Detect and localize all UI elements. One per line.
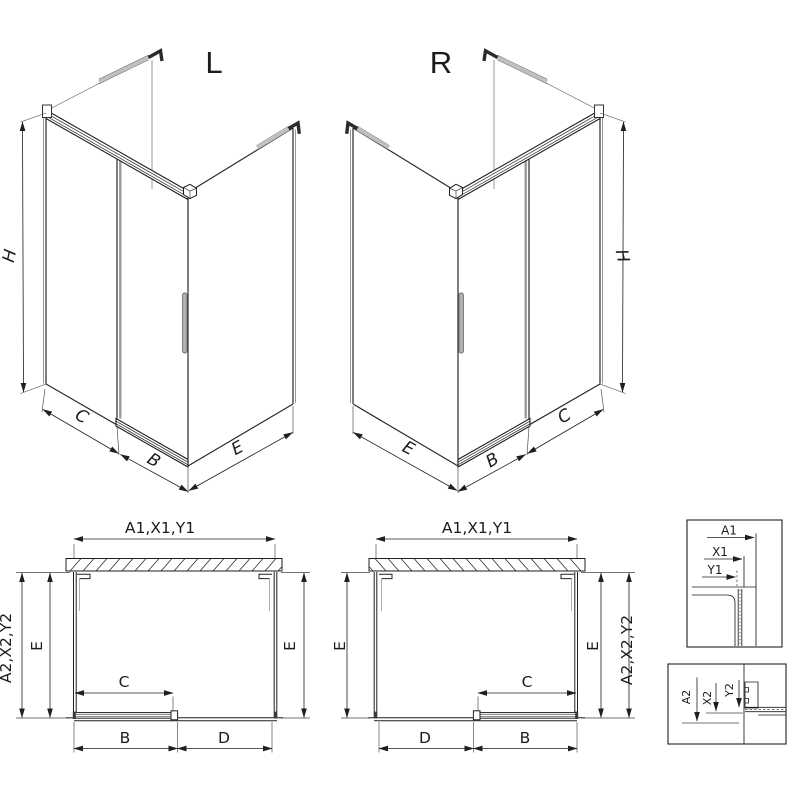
plan-left-e-right-label: E — [281, 641, 299, 651]
wall-section — [66, 559, 282, 572]
iso-left-dim-h-label: H — [0, 247, 21, 264]
detail-lower-y2-label: Y2 — [723, 683, 736, 698]
wall-bracket-profiles — [77, 574, 272, 578]
drawing-svg: L H C B E R H C B E — [0, 0, 800, 800]
panel-inner-edges — [80, 579, 270, 611]
dim-extension-lines — [21, 113, 294, 493]
iso-left-labels: L H C B E — [0, 45, 247, 472]
detail-upper-x1-label: X1 — [712, 545, 728, 559]
plan-right-d-label: D — [419, 729, 431, 747]
iso-right-dim-c-label: C — [554, 405, 574, 428]
iso-enclosure-left-geometry — [21, 51, 300, 493]
support-bar-right — [257, 129, 289, 148]
thin-aux-lines — [44, 55, 296, 403]
door-wall-cap — [73, 712, 76, 719]
side-panel-profiles — [66, 572, 283, 721]
plan-left-depth-outer-label: A2,X2,Y2 — [0, 613, 15, 683]
detail-upper-a1-label: A1 — [721, 524, 737, 538]
detail-lower-x2-label: X2 — [701, 691, 714, 706]
door-handle — [183, 293, 187, 353]
plan-left-d-label: D — [218, 729, 230, 747]
detail-lower-box: A2 X2 Y2 — [668, 664, 786, 744]
plan-left-b-label: B — [120, 729, 131, 747]
detail-upper-y1-label: Y1 — [707, 563, 723, 577]
plan-right-width-label: A1,X1,Y1 — [442, 519, 512, 537]
plan-right-c-label: C — [522, 673, 533, 691]
variant-right-title: R — [430, 45, 452, 80]
iso-left-dim-c-label: C — [71, 405, 91, 428]
technical-drawing-sheet: L H C B E R H C B E — [0, 0, 800, 800]
iso-left-dim-e-label: E — [228, 437, 247, 460]
wall-anchor-right — [289, 123, 300, 134]
detail-upper-box: A1 X1 Y1 — [687, 520, 782, 647]
plan-right-e-right-label: E — [584, 641, 602, 651]
iso-right-dim-e-label: E — [399, 437, 418, 460]
support-bar-left — [99, 58, 149, 82]
wall-anchor-left — [149, 51, 163, 61]
dim-line-H — [23, 122, 24, 392]
sliding-door-plan — [74, 713, 171, 719]
plan-right-depth-outer-label: A2,X2,Y2 — [618, 615, 636, 685]
rail-wall-clamp — [43, 105, 52, 118]
door-end-cap — [171, 711, 178, 720]
dim-line-E — [189, 433, 293, 491]
plan-left-e-left-label: E — [28, 641, 46, 651]
plan-left-width-label: A1,X1,Y1 — [125, 519, 195, 537]
fixed-panel-cap — [274, 712, 277, 719]
iso-enclosure-right-geometry — [347, 51, 626, 493]
plan-view-left-geometry — [16, 539, 310, 753]
plan-right-e-left-label: E — [331, 641, 349, 651]
detail-lower-a2-label: A2 — [680, 690, 693, 705]
variant-left-title: L — [205, 45, 222, 80]
plan-right-b-label: B — [520, 729, 531, 747]
plan-left-c-label: C — [119, 673, 130, 691]
iso-right-dim-h-label: H — [611, 248, 633, 265]
detail-upper-border — [687, 520, 782, 647]
